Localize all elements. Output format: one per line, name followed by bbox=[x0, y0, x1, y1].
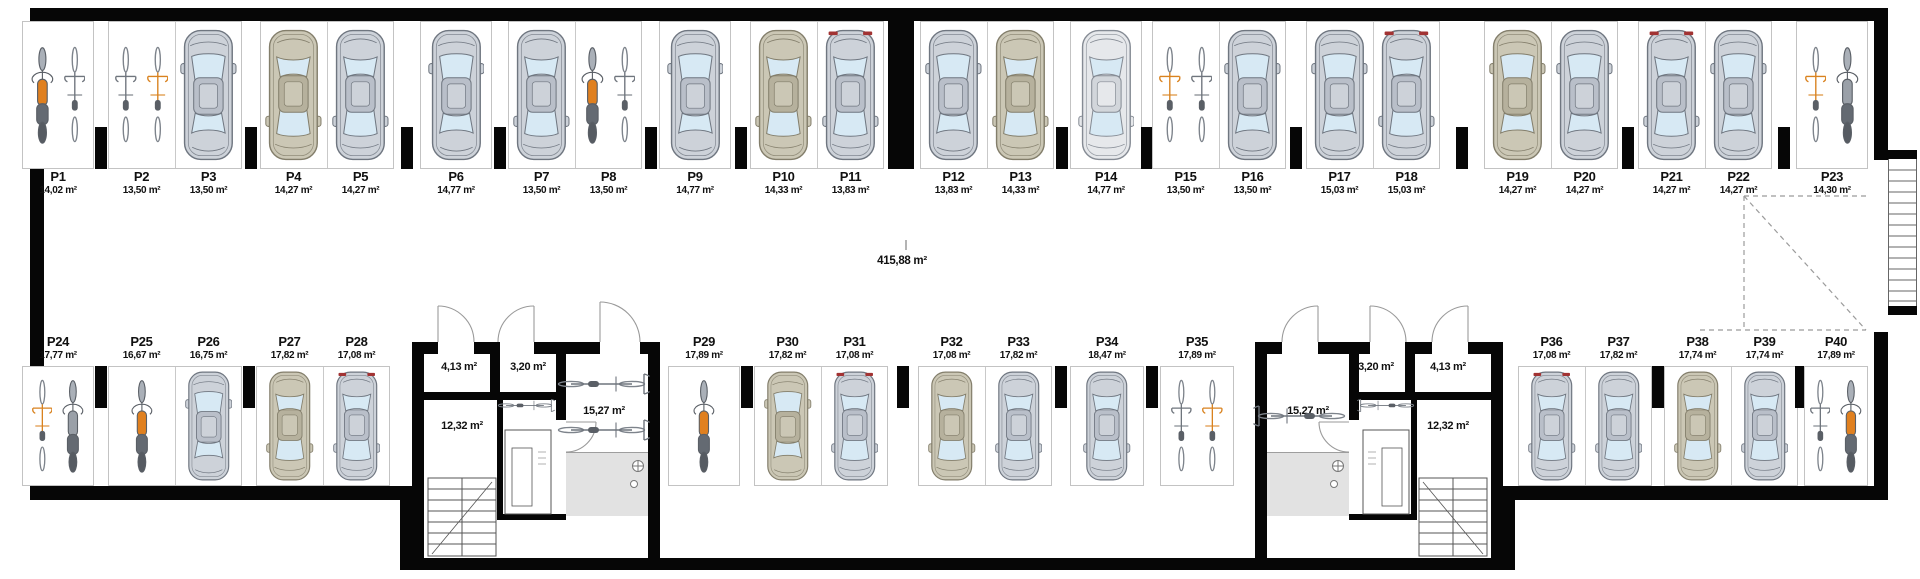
wall bbox=[1255, 342, 1267, 570]
stall-area-label-P32: 17,08 m² bbox=[933, 350, 971, 362]
stall-id-label-P3: P3 bbox=[201, 170, 216, 184]
stall-id-label-P23: P23 bbox=[1821, 170, 1843, 184]
stall-id-label-P13: P13 bbox=[1009, 170, 1031, 184]
stall-id-label-P31: P31 bbox=[843, 335, 865, 349]
stall-id-label-P5: P5 bbox=[353, 170, 368, 184]
stairwell-area-label: 12,32 m² bbox=[441, 420, 483, 432]
car-icon bbox=[1595, 370, 1643, 482]
bicycle-icon bbox=[1805, 46, 1827, 144]
stall-group bbox=[108, 21, 242, 169]
stall-id-label-P25: P25 bbox=[130, 335, 152, 349]
entrance-dashed-markings bbox=[1700, 196, 1866, 330]
stall-group bbox=[1638, 21, 1772, 169]
car-icon bbox=[992, 28, 1049, 162]
wall bbox=[1874, 8, 1888, 160]
stall-area-label-P24: 17,77 m² bbox=[39, 350, 77, 362]
stall-id-label-P28: P28 bbox=[345, 335, 367, 349]
stall-group bbox=[1804, 366, 1868, 486]
car-icon bbox=[185, 370, 233, 482]
stall-id-label-P34: P34 bbox=[1096, 335, 1118, 349]
stall-area-label-P1: 14,02 m² bbox=[39, 185, 77, 197]
stall-id-label-P17: P17 bbox=[1328, 170, 1350, 184]
motorcycle-icon bbox=[31, 46, 54, 144]
aisle-area-label: 415,88 m² bbox=[877, 255, 927, 267]
stall-id-label-P20: P20 bbox=[1573, 170, 1595, 184]
car-icon bbox=[1224, 28, 1281, 162]
bicycle-icon bbox=[32, 379, 53, 473]
parking-stall-P10 bbox=[751, 22, 817, 168]
stall-area-label-P2: 13,50 m² bbox=[123, 185, 161, 197]
stall-id-label-P1: P1 bbox=[50, 170, 65, 184]
stall-group bbox=[256, 366, 390, 486]
car-icon bbox=[333, 370, 381, 482]
stairwell-area-label: 12,32 m² bbox=[1427, 420, 1469, 432]
bicycle-icon bbox=[1202, 379, 1223, 473]
stall-group bbox=[22, 366, 94, 486]
corridor-area-label: 3,20 m² bbox=[510, 361, 546, 373]
column-pillar bbox=[95, 127, 107, 169]
stall-area-label-P7: 13,50 m² bbox=[523, 185, 561, 197]
column-pillar bbox=[741, 366, 753, 408]
stall-id-label-P19: P19 bbox=[1506, 170, 1528, 184]
parking-stall-P20 bbox=[1551, 22, 1618, 168]
car-icon bbox=[513, 28, 570, 162]
stall-area-label-P15: 13,50 m² bbox=[1167, 185, 1205, 197]
stall-id-label-P18: P18 bbox=[1395, 170, 1417, 184]
wall bbox=[1491, 342, 1503, 570]
wall bbox=[1411, 400, 1417, 520]
stall-area-label-P39: 17,74 m² bbox=[1746, 350, 1784, 362]
stall-area-label-P36: 17,08 m² bbox=[1533, 350, 1571, 362]
parking-stall-P7 bbox=[509, 22, 575, 168]
car-icon bbox=[822, 28, 879, 162]
stall-group bbox=[1796, 21, 1868, 169]
wall bbox=[1349, 342, 1359, 420]
stall-id-label-P30: P30 bbox=[776, 335, 798, 349]
parking-stall-P11 bbox=[817, 22, 884, 168]
column-pillar bbox=[1055, 366, 1067, 408]
car-icon bbox=[266, 370, 314, 482]
parking-stall-P8 bbox=[575, 22, 642, 168]
stall-area-label-P5: 14,27 m² bbox=[342, 185, 380, 197]
car-icon bbox=[1378, 28, 1435, 162]
stall-area-label-P10: 14,33 m² bbox=[765, 185, 803, 197]
stall-area-label-P23: 14,30 m² bbox=[1813, 185, 1851, 197]
car-icon bbox=[1674, 370, 1722, 482]
stall-id-label-P6: P6 bbox=[448, 170, 463, 184]
parking-stall-P17 bbox=[1307, 22, 1373, 168]
column-pillar bbox=[1622, 127, 1634, 169]
parking-stall-P12 bbox=[921, 22, 987, 168]
parking-stall-P35 bbox=[1161, 367, 1233, 485]
car-icon bbox=[755, 28, 812, 162]
stall-id-label-P26: P26 bbox=[197, 335, 219, 349]
parking-stall-P30 bbox=[755, 367, 821, 485]
stall-area-label-P4: 14,27 m² bbox=[275, 185, 313, 197]
stall-group bbox=[1306, 21, 1440, 169]
parking-stall-P9 bbox=[660, 22, 730, 168]
wall bbox=[400, 558, 1515, 570]
bicycle-icon bbox=[1810, 379, 1831, 473]
stall-area-label-P27: 17,82 m² bbox=[271, 350, 309, 362]
motorcycle-icon bbox=[1836, 46, 1859, 144]
stall-id-label-P22: P22 bbox=[1727, 170, 1749, 184]
column-pillar bbox=[897, 366, 909, 408]
car-icon bbox=[180, 28, 237, 162]
bike-room-area-label: 15,27 m² bbox=[1287, 405, 1329, 417]
car-icon bbox=[1078, 28, 1135, 162]
parking-stall-P14 bbox=[1071, 22, 1141, 168]
parking-stall-P4 bbox=[261, 22, 327, 168]
stall-group bbox=[260, 21, 394, 169]
stall-id-label-P8: P8 bbox=[601, 170, 616, 184]
stall-area-label-P28: 17,08 m² bbox=[338, 350, 376, 362]
parking-stall-P23 bbox=[1797, 22, 1867, 168]
stall-area-label-P14: 14,77 m² bbox=[1087, 185, 1125, 197]
stall-area-label-P16: 13,50 m² bbox=[1234, 185, 1272, 197]
car-icon bbox=[332, 28, 389, 162]
stall-area-label-P31: 17,08 m² bbox=[836, 350, 874, 362]
parking-stall-P26 bbox=[175, 367, 242, 485]
vestibule-area-label: 4,13 m² bbox=[441, 361, 477, 373]
wall bbox=[556, 342, 566, 420]
motorcycle-icon bbox=[1840, 379, 1862, 473]
stall-area-label-P38: 17,74 m² bbox=[1679, 350, 1717, 362]
section-wall bbox=[888, 8, 914, 169]
column-pillar bbox=[245, 127, 257, 169]
parking-stall-P39 bbox=[1731, 367, 1798, 485]
wall bbox=[1874, 332, 1888, 500]
stall-group bbox=[1518, 366, 1652, 486]
column-pillar bbox=[243, 366, 255, 408]
stall-area-label-P29: 17,89 m² bbox=[685, 350, 723, 362]
stall-group bbox=[22, 21, 94, 169]
parking-stall-P16 bbox=[1219, 22, 1286, 168]
stall-area-label-P33: 17,82 m² bbox=[1000, 350, 1038, 362]
stall-id-label-P14: P14 bbox=[1095, 170, 1117, 184]
wall bbox=[1503, 486, 1888, 500]
staircase-icon bbox=[428, 478, 496, 556]
stall-area-label-P22: 14,27 m² bbox=[1720, 185, 1758, 197]
stall-id-label-P24: P24 bbox=[47, 335, 69, 349]
parking-stall-P24 bbox=[23, 367, 93, 485]
parking-stall-P1 bbox=[23, 22, 93, 168]
parking-stall-P31 bbox=[821, 367, 888, 485]
bike-room-landing bbox=[566, 452, 648, 516]
car-icon bbox=[1489, 28, 1546, 162]
stall-id-label-P16: P16 bbox=[1241, 170, 1263, 184]
stall-area-label-P34: 18,47 m² bbox=[1088, 350, 1126, 362]
stall-group bbox=[420, 21, 492, 169]
stall-id-label-P33: P33 bbox=[1007, 335, 1029, 349]
motorcycle-icon bbox=[62, 379, 84, 473]
bicycle-icon bbox=[64, 46, 86, 144]
car-icon bbox=[428, 28, 485, 162]
stall-id-label-P40: P40 bbox=[1825, 335, 1847, 349]
stall-id-label-P39: P39 bbox=[1753, 335, 1775, 349]
column-pillar bbox=[645, 127, 657, 169]
column-pillar bbox=[401, 127, 413, 169]
stall-id-label-P29: P29 bbox=[693, 335, 715, 349]
stall-area-label-P17: 15,03 m² bbox=[1321, 185, 1359, 197]
parking-stall-P21 bbox=[1639, 22, 1705, 168]
wall bbox=[648, 342, 660, 570]
parking-stall-P15 bbox=[1153, 22, 1219, 168]
parking-stall-P19 bbox=[1485, 22, 1551, 168]
car-icon bbox=[1556, 28, 1613, 162]
parking-stall-P2 bbox=[109, 22, 175, 168]
column-pillar bbox=[494, 127, 506, 169]
stall-id-label-P12: P12 bbox=[942, 170, 964, 184]
parking-stall-P34 bbox=[1071, 367, 1143, 485]
stall-group bbox=[1484, 21, 1618, 169]
stall-group bbox=[1160, 366, 1234, 486]
car-icon bbox=[1311, 28, 1368, 162]
stall-id-label-P38: P38 bbox=[1686, 335, 1708, 349]
car-icon bbox=[265, 28, 322, 162]
car-icon bbox=[928, 370, 976, 482]
stall-group bbox=[1070, 21, 1142, 169]
parking-stall-P27 bbox=[257, 367, 323, 485]
parking-stall-P6 bbox=[421, 22, 491, 168]
stall-area-label-P3: 13,50 m² bbox=[190, 185, 228, 197]
wall bbox=[30, 8, 1888, 21]
car-icon bbox=[1741, 370, 1789, 482]
stall-group bbox=[754, 366, 888, 486]
motorcycle-icon bbox=[581, 46, 604, 144]
bicycle-icon bbox=[115, 46, 137, 144]
car-icon bbox=[1083, 370, 1131, 482]
stall-id-label-P10: P10 bbox=[772, 170, 794, 184]
bicycle-icon bbox=[147, 46, 169, 144]
stall-area-label-P35: 17,89 m² bbox=[1178, 350, 1216, 362]
stall-group bbox=[108, 366, 242, 486]
wall bbox=[412, 342, 424, 570]
stall-area-label-P6: 14,77 m² bbox=[437, 185, 475, 197]
stall-id-label-P4: P4 bbox=[286, 170, 301, 184]
car-icon bbox=[925, 28, 982, 162]
wall bbox=[497, 400, 503, 520]
car-icon bbox=[764, 370, 812, 482]
wall bbox=[1349, 514, 1417, 520]
stall-area-label-P12: 13,83 m² bbox=[935, 185, 973, 197]
stall-id-label-P37: P37 bbox=[1607, 335, 1629, 349]
car-icon bbox=[995, 370, 1043, 482]
parking-stall-P22 bbox=[1705, 22, 1772, 168]
elevator-shaft bbox=[505, 430, 551, 514]
wall bbox=[30, 486, 412, 500]
column-pillar bbox=[1290, 127, 1302, 169]
parking-stall-P29 bbox=[669, 367, 739, 485]
wall bbox=[424, 392, 556, 400]
car-icon bbox=[1643, 28, 1700, 162]
stall-group bbox=[1070, 366, 1144, 486]
stall-area-label-P21: 14,27 m² bbox=[1653, 185, 1691, 197]
parking-stall-P28 bbox=[323, 367, 390, 485]
stall-group bbox=[750, 21, 884, 169]
column-pillar bbox=[1652, 366, 1664, 408]
parking-stall-P18 bbox=[1373, 22, 1440, 168]
stall-group bbox=[668, 366, 740, 486]
column-pillar bbox=[1456, 127, 1468, 169]
bicycle-icon bbox=[1171, 379, 1192, 473]
stall-id-label-P2: P2 bbox=[134, 170, 149, 184]
motorcycle-icon bbox=[131, 379, 153, 473]
car-icon bbox=[667, 28, 724, 162]
car-icon bbox=[1710, 28, 1767, 162]
stall-area-label-P37: 17,82 m² bbox=[1600, 350, 1638, 362]
parking-stall-P40 bbox=[1805, 367, 1867, 485]
column-pillar bbox=[95, 366, 107, 408]
stall-id-label-P35: P35 bbox=[1186, 335, 1208, 349]
parking-stall-P37 bbox=[1585, 367, 1652, 485]
stall-area-label-P13: 14,33 m² bbox=[1002, 185, 1040, 197]
staircase-icon bbox=[1419, 478, 1487, 556]
stall-id-label-P15: P15 bbox=[1174, 170, 1196, 184]
parking-stall-P38 bbox=[1665, 367, 1731, 485]
stall-id-label-P9: P9 bbox=[687, 170, 702, 184]
parking-stall-P33 bbox=[985, 367, 1052, 485]
stall-group bbox=[1152, 21, 1286, 169]
stall-area-label-P9: 14,77 m² bbox=[676, 185, 714, 197]
stall-group bbox=[1664, 366, 1798, 486]
stall-group bbox=[918, 366, 1052, 486]
wall bbox=[497, 514, 566, 520]
wall bbox=[1318, 342, 1370, 354]
stall-area-label-P26: 16,75 m² bbox=[190, 350, 228, 362]
wall bbox=[1355, 392, 1491, 400]
bicycle-icon bbox=[614, 46, 636, 144]
parking-stall-P25 bbox=[109, 367, 175, 485]
stall-area-label-P19: 14,27 m² bbox=[1499, 185, 1537, 197]
corridor-area-label: 3,20 m² bbox=[1358, 361, 1394, 373]
bicycle-icon bbox=[1159, 46, 1181, 144]
stall-area-label-P30: 17,82 m² bbox=[769, 350, 807, 362]
parking-stall-P32 bbox=[919, 367, 985, 485]
column-pillar bbox=[735, 127, 747, 169]
column-pillar bbox=[1056, 127, 1068, 169]
stall-group bbox=[920, 21, 1054, 169]
stall-group bbox=[659, 21, 731, 169]
wall bbox=[534, 342, 600, 354]
parking-stall-P3 bbox=[175, 22, 242, 168]
stall-id-label-P21: P21 bbox=[1660, 170, 1682, 184]
stall-area-label-P8: 13,50 m² bbox=[590, 185, 628, 197]
parking-stall-P13 bbox=[987, 22, 1054, 168]
ramp bbox=[1888, 150, 1917, 315]
car-icon bbox=[831, 370, 879, 482]
parking-stall-P5 bbox=[327, 22, 394, 168]
stall-id-label-P7: P7 bbox=[534, 170, 549, 184]
stall-group bbox=[508, 21, 642, 169]
stall-id-label-P27: P27 bbox=[278, 335, 300, 349]
bicycle-icon bbox=[1191, 46, 1213, 144]
stall-area-label-P25: 16,67 m² bbox=[123, 350, 161, 362]
stall-id-label-P36: P36 bbox=[1540, 335, 1562, 349]
floor-plan: 415,88 m² 4,13 m² 3,20 m² 12,32 m² 15,27… bbox=[0, 0, 1920, 579]
stall-area-label-P20: 14,27 m² bbox=[1566, 185, 1604, 197]
column-pillar bbox=[1778, 127, 1790, 169]
car-icon bbox=[1528, 370, 1576, 482]
stall-area-label-P11: 13,83 m² bbox=[832, 185, 870, 197]
stall-area-label-P40: 17,89 m² bbox=[1817, 350, 1855, 362]
motorcycle-icon bbox=[693, 379, 715, 473]
bike-room-landing bbox=[1267, 452, 1349, 516]
stall-id-label-P32: P32 bbox=[940, 335, 962, 349]
stall-id-label-P11: P11 bbox=[840, 170, 862, 184]
column-pillar bbox=[1146, 366, 1158, 408]
bike-room-area-label: 15,27 m² bbox=[583, 405, 625, 417]
elevator-shaft bbox=[1363, 430, 1409, 514]
parking-stall-P36 bbox=[1519, 367, 1585, 485]
stall-area-label-P18: 15,03 m² bbox=[1388, 185, 1426, 197]
vestibule-area-label: 4,13 m² bbox=[1430, 361, 1466, 373]
